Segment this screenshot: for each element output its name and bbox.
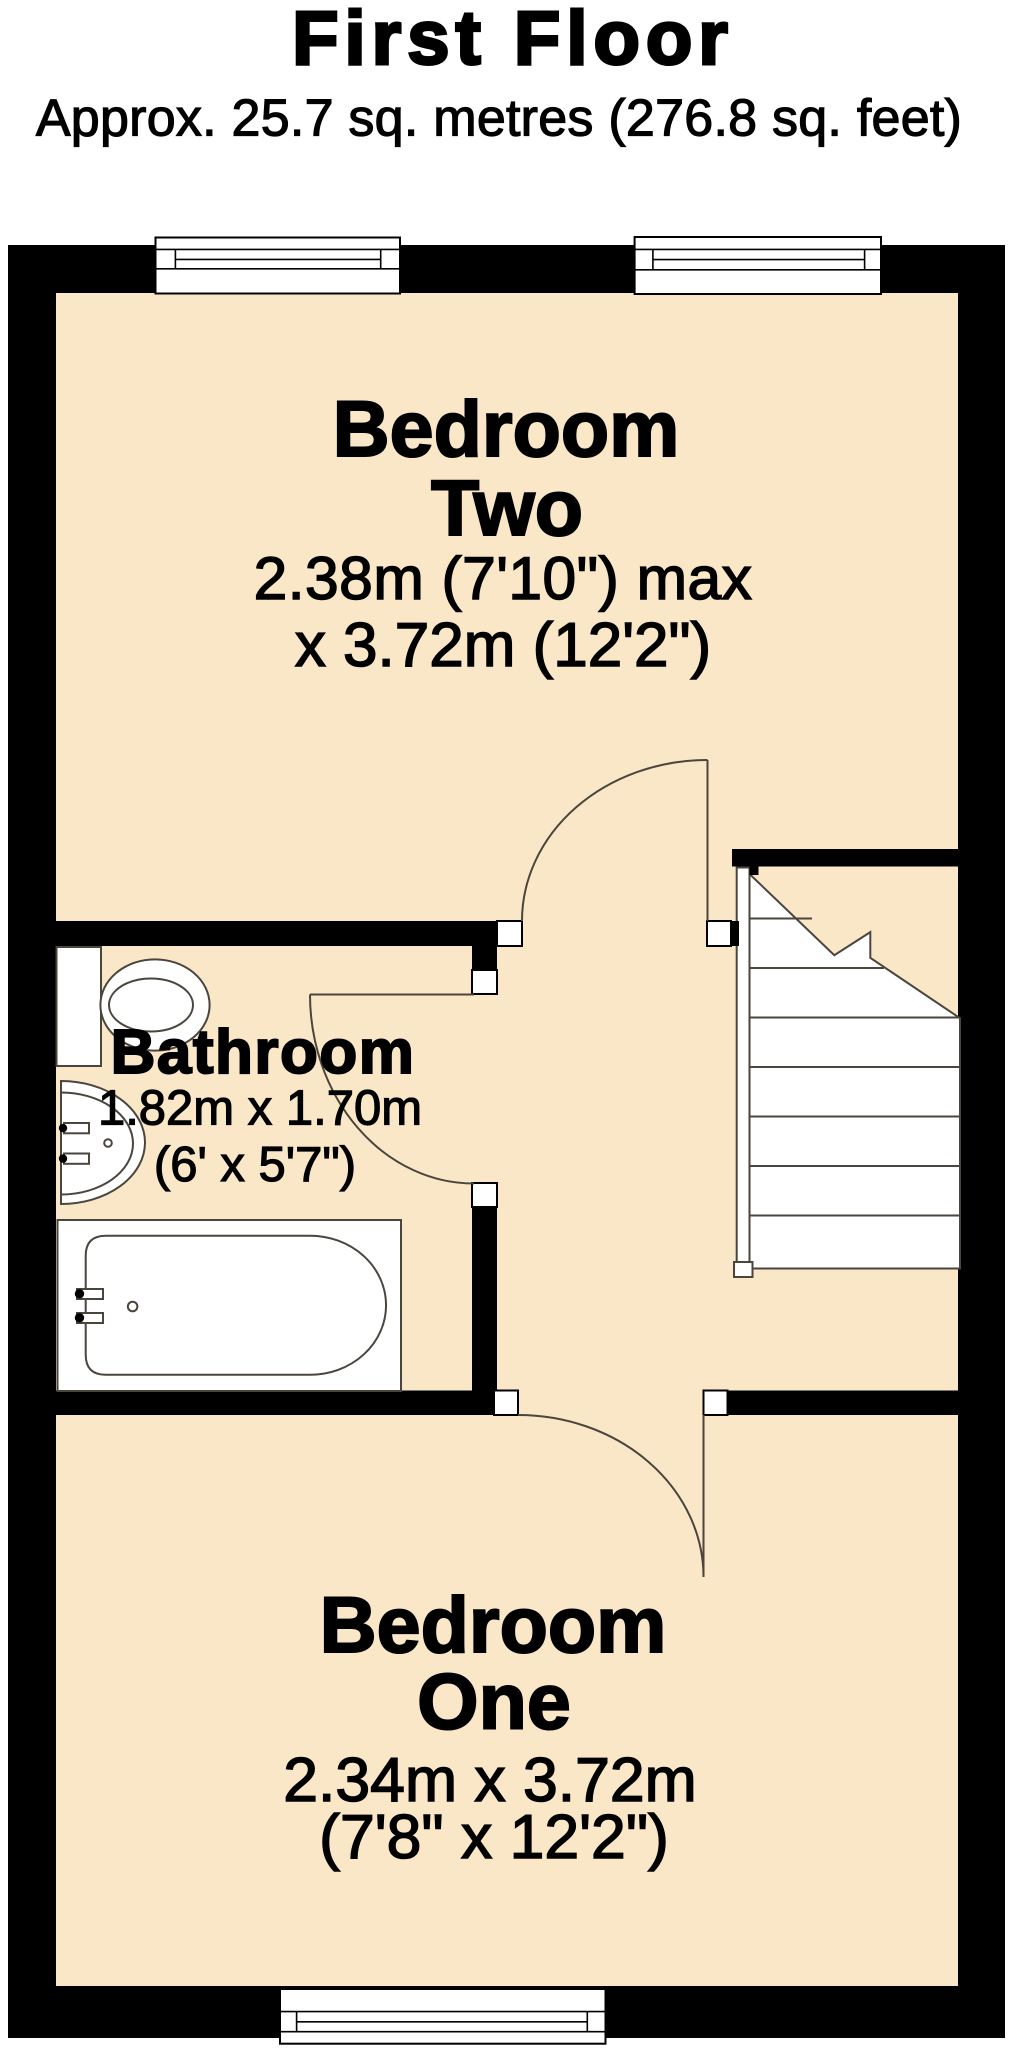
svg-text:Approx. 25.7 sq. metres (276.8: Approx. 25.7 sq. metres (276.8 sq. feet): [36, 90, 962, 148]
svg-text:Bedroom: Bedroom: [333, 384, 680, 473]
svg-text:Bathroom: Bathroom: [111, 1018, 416, 1087]
svg-text:Two: Two: [431, 463, 583, 552]
svg-text:x 3.72m (12'2"): x 3.72m (12'2"): [295, 611, 711, 680]
svg-text:1.82m x 1.70m: 1.82m x 1.70m: [98, 1082, 422, 1136]
svg-text:2.38m (7'10") max: 2.38m (7'10") max: [254, 544, 753, 612]
svg-text:One: One: [417, 1657, 571, 1746]
svg-text:(7'8" x 12'2"): (7'8" x 12'2"): [319, 1802, 669, 1872]
svg-text:(6' x 5'7"): (6' x 5'7"): [154, 1138, 356, 1192]
svg-text:First Floor: First Floor: [292, 0, 734, 81]
